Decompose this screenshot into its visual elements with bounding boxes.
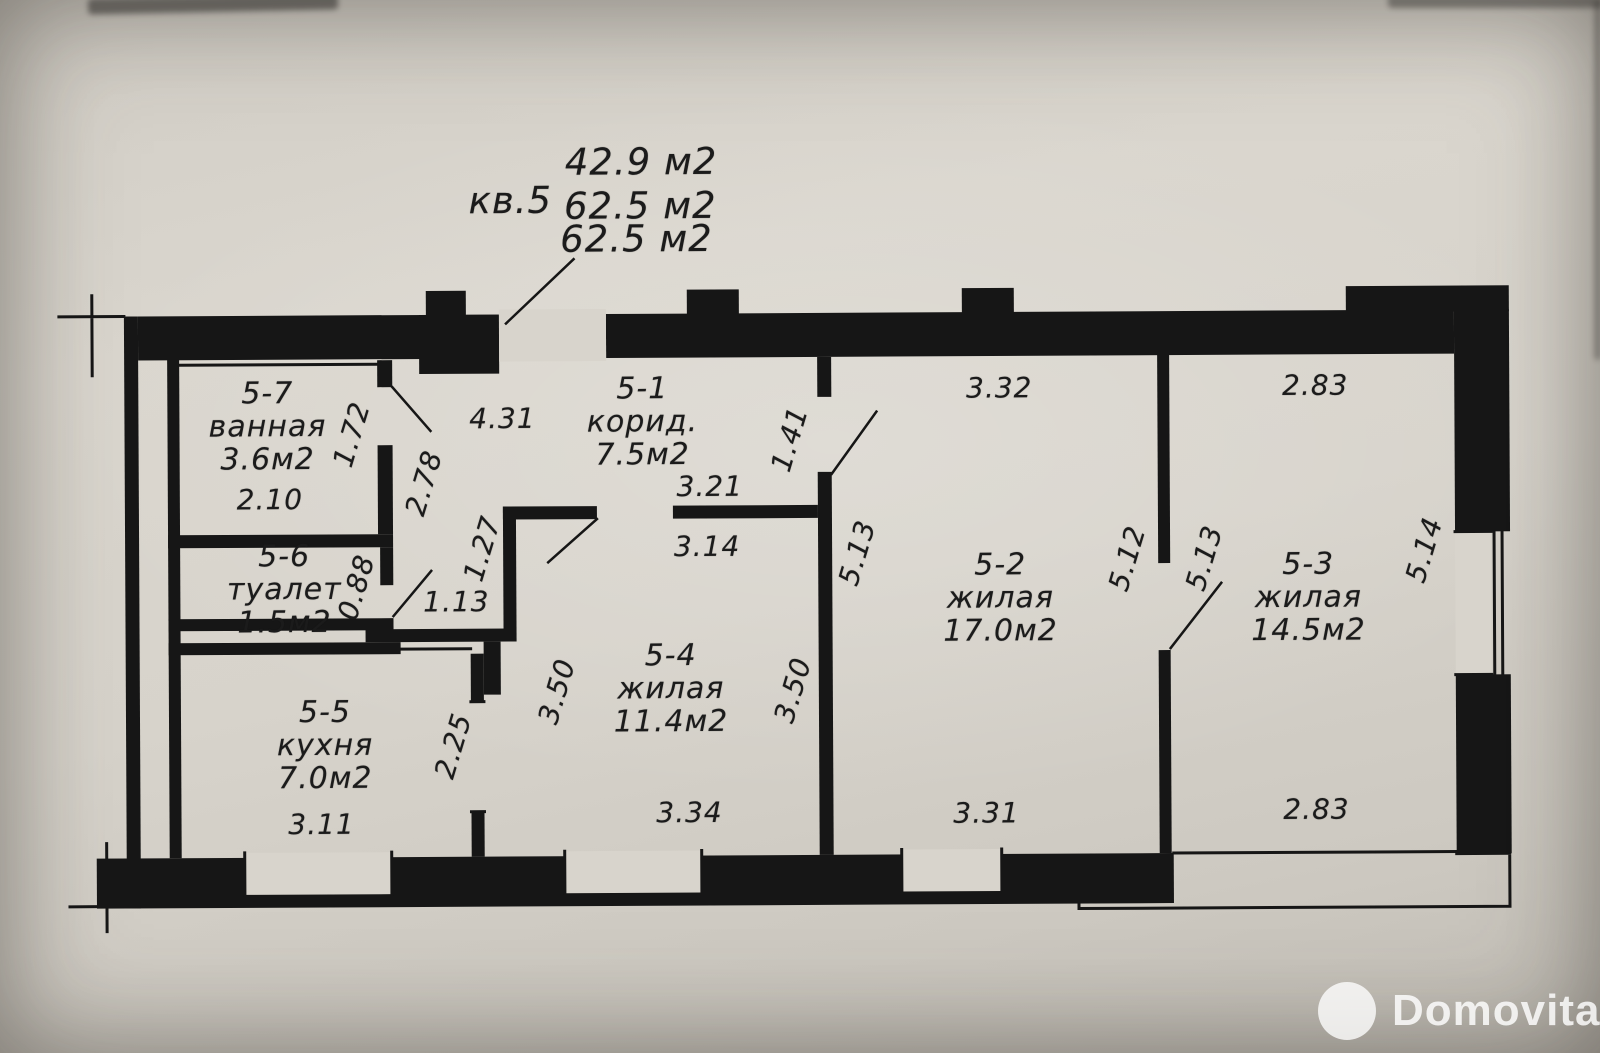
walls-linework: [0, 0, 1600, 1053]
dim-corridor-length: 4.31: [469, 402, 536, 435]
room-area: 14.5м2: [1251, 614, 1366, 648]
domovita-watermark: Domovita: [1318, 982, 1600, 1040]
room-name: жилая: [943, 581, 1058, 615]
photo-edge-smudge: [1594, 0, 1600, 360]
room-name: жилая: [1251, 581, 1366, 615]
room-area: 17.0м2: [943, 614, 1058, 648]
room-id: 5-2: [943, 548, 1058, 582]
room-name: ванная: [209, 410, 327, 444]
room-area: 11.4м2: [614, 705, 729, 739]
room-label-corridor: 5-1 корид. 7.5м2: [587, 372, 699, 472]
room-area: 1.5м2: [227, 606, 342, 640]
room-label-toilet: 5-6 туалет 1.5м2: [227, 540, 342, 640]
dim-1-13: 1.13: [423, 585, 490, 618]
room-label-living-5-2: 5-2 жилая 17.0м2: [943, 548, 1058, 648]
room-name: кухня: [277, 729, 373, 763]
room-name: туалет: [227, 573, 342, 607]
dim-3-21: 3.21: [677, 470, 744, 503]
total-area-line-1: 42.9 м2: [565, 140, 718, 184]
room-area: 3.6м2: [209, 443, 327, 477]
dim-kitchen-width: 3.11: [288, 808, 355, 841]
room-name: корид.: [587, 405, 698, 439]
floorplan-drawing: кв.5 42.9 м2 62.5 м2 62.5 м2 5-7 ванная …: [0, 0, 1600, 1053]
room-id: 5-3: [1251, 548, 1366, 582]
dim-bath-width: 2.10: [237, 483, 304, 516]
room-id: 5-4: [613, 639, 728, 673]
room-area: 7.0м2: [277, 762, 373, 796]
photo-edge-smudge: [1388, 0, 1600, 8]
dim-3-14: 3.14: [674, 530, 741, 563]
room-label-bathroom: 5-7 ванная 3.6м2: [208, 377, 326, 477]
dim-room4-width: 3.34: [656, 796, 723, 829]
dim-room2-width-top: 3.32: [966, 371, 1033, 404]
room-id: 5-6: [227, 540, 342, 574]
total-area-line-3: 62.5 м2: [560, 217, 713, 261]
dim-room3-width-bottom: 2.83: [1283, 793, 1350, 826]
room-label-kitchen: 5-5 кухня 7.0м2: [277, 696, 374, 796]
room-label-living-5-3: 5-3 жилая 14.5м2: [1251, 548, 1366, 648]
domovita-logo-text: Domovita: [1392, 986, 1600, 1036]
floorplan-photo: кв.5 42.9 м2 62.5 м2 62.5 м2 5-7 ванная …: [0, 0, 1600, 1053]
room-id: 5-1: [587, 372, 698, 406]
apartment-number-label: кв.5: [468, 179, 552, 222]
domovita-logo-icon: [1318, 982, 1376, 1040]
room-area: 7.5м2: [587, 438, 698, 472]
room-id: 5-5: [277, 696, 373, 730]
room-id: 5-7: [208, 377, 326, 411]
room-label-living-5-4: 5-4 жилая 11.4м2: [613, 639, 728, 739]
dim-room3-width-top: 2.83: [1282, 369, 1349, 402]
dim-room2-width-bottom: 3.31: [953, 796, 1020, 829]
room-name: жилая: [614, 672, 729, 706]
